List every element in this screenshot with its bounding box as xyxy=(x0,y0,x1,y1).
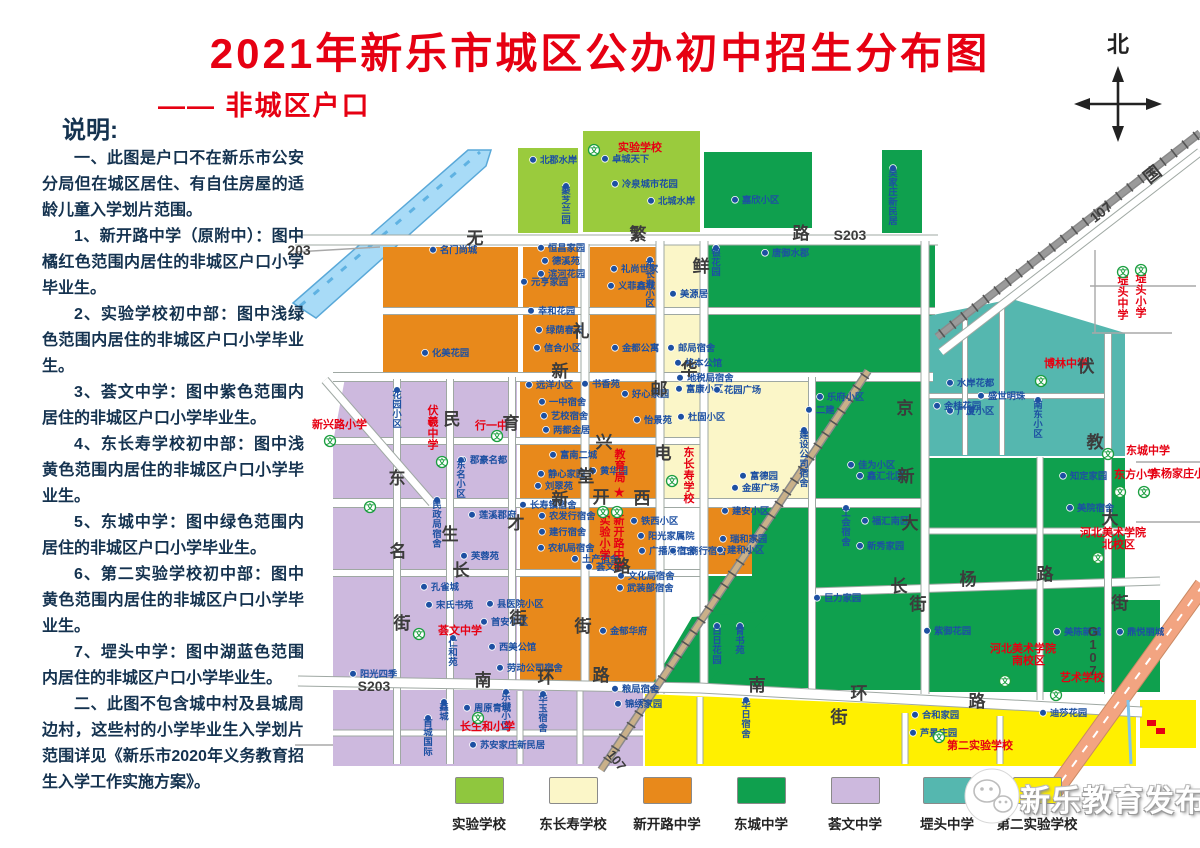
poi-dot xyxy=(582,380,589,387)
road-name: S203 xyxy=(358,678,391,694)
area-label-char: 宿 xyxy=(741,718,750,729)
area-label-char: 小 xyxy=(455,478,466,489)
poi-dot xyxy=(535,482,542,489)
area-label: 杜固小区 xyxy=(688,411,726,422)
school-icon-glyph: 文 xyxy=(438,457,447,467)
poi-dot xyxy=(538,244,545,251)
poi-dot xyxy=(639,547,646,554)
poi-dot xyxy=(1067,504,1074,511)
poi-dot xyxy=(676,385,683,392)
poi-dot xyxy=(612,685,619,692)
area-label: 合和家园 xyxy=(922,709,959,720)
poi-dot xyxy=(539,528,546,535)
road-name: 新 xyxy=(552,489,569,509)
poi-dot xyxy=(910,729,917,736)
poi-dot xyxy=(740,472,747,479)
area-label: 紫御花园 xyxy=(934,625,971,636)
poi-dot xyxy=(572,555,579,562)
road-name: 大 xyxy=(902,513,919,533)
school-label-line2: 南校区 xyxy=(1012,653,1045,667)
school-icon-glyph: 文 xyxy=(1094,553,1103,563)
area-label-char: 乐 xyxy=(501,691,511,702)
school-label-char: 育 xyxy=(615,459,626,473)
area-label-char: 工 xyxy=(841,508,851,518)
area-label-char: 宿 xyxy=(799,467,808,478)
poi-dot xyxy=(489,643,496,650)
poi-dot xyxy=(538,544,545,551)
zone-dongcheng-north-1 xyxy=(704,152,812,228)
school-icon-glyph: 文 xyxy=(1116,487,1125,497)
area-label: 书香苑 xyxy=(592,378,621,389)
poi-dot xyxy=(534,344,541,351)
poi-dot xyxy=(617,584,624,591)
area-label: 鼎悦丽城 xyxy=(1127,626,1165,637)
school-icon-glyph: 文 xyxy=(1119,267,1128,277)
road-name: 西 xyxy=(634,489,651,508)
area-label: 农发行宿舍 xyxy=(548,510,596,521)
school-icon-glyph: 文 xyxy=(1137,265,1146,275)
poi-dot xyxy=(350,670,357,677)
legend-swatch xyxy=(737,777,786,804)
area-label: 冷泉城市花园 xyxy=(622,178,678,189)
area-label-char: 玉 xyxy=(538,704,548,714)
school-label: 长生和小学 xyxy=(460,719,515,733)
poi-dot xyxy=(732,484,739,491)
area-label-char: 白 xyxy=(712,625,721,636)
area-label: 幸和花园 xyxy=(538,305,575,316)
school-label: 东杨家庄小学 xyxy=(1150,466,1200,480)
area-label: 水岸花都 xyxy=(957,377,995,388)
area-label-char: 宿 xyxy=(841,526,850,537)
area-label-char: 书 xyxy=(735,635,745,646)
poi-dot xyxy=(612,344,619,351)
notes-panel: 说明: 一、此图是户口不在新乐市公安分局但在城区居住、有自住房屋的适龄儿童入学划… xyxy=(42,118,304,796)
area-label: 新秀家园 xyxy=(867,540,904,551)
area-label: 铁西小区 xyxy=(641,515,679,526)
road-name: 长 xyxy=(891,576,909,596)
poi-red-block xyxy=(1147,720,1156,726)
area-label: 宋氏书苑 xyxy=(435,599,474,610)
school-label-char: 寿 xyxy=(684,468,695,482)
school-label-char: 路 xyxy=(614,536,626,550)
area-label-char: 舍 xyxy=(537,722,548,733)
road-name: 街 xyxy=(509,608,527,628)
school-icon-glyph: 文 xyxy=(326,436,335,446)
road-name: 街 xyxy=(393,613,411,633)
area-label-char: 街 xyxy=(500,701,511,712)
area-label-char: 政 xyxy=(432,509,442,520)
area-label-char: 会 xyxy=(841,517,851,528)
area-label-char: 鑫 xyxy=(438,701,449,712)
school-label-char: 东 xyxy=(684,445,695,459)
poi-dot xyxy=(611,265,618,272)
road-name: 京 xyxy=(897,398,914,418)
school-label-char: 中 xyxy=(1118,296,1129,310)
poi-dot xyxy=(978,392,985,399)
poi-dot xyxy=(608,282,615,289)
area-label-char: 东 xyxy=(1033,409,1042,420)
area-label: 花园广场 xyxy=(724,384,761,395)
area-label: 佳为小区 xyxy=(858,459,896,470)
area-label-char: 仁 xyxy=(448,637,458,648)
poi-dot xyxy=(543,426,550,433)
area-label-char: 华 xyxy=(741,699,751,710)
area-label: 农机局宿舍 xyxy=(547,542,595,553)
poi-dot xyxy=(541,412,548,419)
poi-dot xyxy=(469,511,476,518)
school-icon-glyph: 文 xyxy=(1052,690,1061,700)
school-label-char: 小 xyxy=(1135,294,1147,308)
area-label-char: 花 xyxy=(711,257,721,268)
school-label-char: 学 xyxy=(600,548,611,562)
area-label-char: 园 xyxy=(392,400,401,410)
road-name: 路 xyxy=(793,223,811,243)
school-label-char: 中 xyxy=(428,426,439,440)
road-name: 路 xyxy=(1037,564,1055,584)
poi-dot xyxy=(470,741,477,748)
area-label: 北城水岸 xyxy=(658,195,696,206)
area-label-char: 区 xyxy=(645,298,655,308)
area-label: 县医院小区 xyxy=(497,598,544,609)
poi-dot xyxy=(934,402,941,409)
compass-arrow-e xyxy=(1146,98,1162,110)
poi-dot xyxy=(912,711,919,718)
poi-dot xyxy=(520,501,527,508)
road-name: 华 xyxy=(681,359,698,379)
poi-dot xyxy=(722,507,729,514)
notes-paragraph: 2、实验学校初中部：图中浅绿色范围内居住的非城区户口小学毕业生。 xyxy=(42,302,304,380)
poi-dot xyxy=(421,583,428,590)
area-label: 建行宿舍 xyxy=(549,526,587,537)
legend-swatch xyxy=(455,777,504,804)
area-label-char: 吴 xyxy=(888,168,898,178)
area-label-char: 寿 xyxy=(645,278,654,289)
area-label: 怡景苑 xyxy=(644,414,673,425)
school-label-char: 头 xyxy=(1136,283,1147,297)
poi-dot xyxy=(717,546,724,553)
school-label-line2: 北校区 xyxy=(1102,537,1135,551)
road-name: 繁 xyxy=(629,224,648,244)
road-name: 民 xyxy=(444,410,461,429)
road-name: 路 xyxy=(593,665,611,685)
poi-dot xyxy=(497,664,504,671)
poi-dot xyxy=(539,398,546,405)
road-name: 无 xyxy=(466,229,484,248)
poi-dot xyxy=(430,246,437,253)
area-label: 嘉欣小区 xyxy=(741,194,780,205)
poi-dot xyxy=(422,349,429,356)
poi-dot xyxy=(668,344,675,351)
poi-dot xyxy=(464,704,471,711)
school-label: 第二实验学校 xyxy=(947,738,1014,752)
poi-dot xyxy=(848,461,855,468)
legend-label: 东城中学 xyxy=(713,813,809,833)
area-label: 武装部宿舍 xyxy=(627,582,674,593)
poi-dot xyxy=(1060,472,1067,479)
poi-dot xyxy=(615,700,622,707)
poi-dot xyxy=(762,249,769,256)
poi-dot xyxy=(536,326,543,333)
area-label: 郡豪名都 xyxy=(469,454,508,465)
road-name-char: 7 xyxy=(1089,663,1096,678)
area-label: 艺校宿舍 xyxy=(551,410,589,421)
road-name: 堂 xyxy=(578,466,595,486)
school-label: 河北美术学院 xyxy=(990,641,1056,655)
area-label-char: 花 xyxy=(712,644,722,655)
poi-dot xyxy=(814,594,821,601)
road-name: 杨 xyxy=(960,569,977,589)
road-name: 新 xyxy=(552,361,569,381)
watermark: 新乐教育发布 xyxy=(962,768,1200,824)
area-label-char: 民 xyxy=(432,500,441,510)
notes-paragraph: 1、新开路中学（原附中）：图中橘红色范围内居住的非城区户口小学毕业生。 xyxy=(42,224,304,302)
wechat-icon xyxy=(962,768,1022,826)
area-label: 盛世明珠 xyxy=(988,390,1026,401)
area-label-char: 名 xyxy=(456,469,465,480)
school-label: 实验学校 xyxy=(618,140,663,154)
school-icon-glyph: 文 xyxy=(1001,676,1010,686)
compass-arrow-w xyxy=(1074,98,1090,110)
poi-dot xyxy=(530,156,537,163)
area-label-char: 苑 xyxy=(447,656,458,667)
poi-dot xyxy=(638,532,645,539)
area-label-char: 宿 xyxy=(538,712,547,723)
legend-swatch xyxy=(643,777,692,804)
area-label: 金桂花园 xyxy=(943,400,981,411)
road-name: 邮 xyxy=(651,379,668,399)
area-label-char: 司 xyxy=(799,459,808,469)
legend-swatch xyxy=(549,777,598,804)
school-icon-glyph: 文 xyxy=(613,507,622,517)
area-label-char: 庄 xyxy=(888,186,898,197)
area-label: 知定家园 xyxy=(1069,470,1107,481)
road-name: S203 xyxy=(834,227,867,243)
poi-dot xyxy=(600,627,607,634)
area-label-char: 新 xyxy=(888,196,898,207)
area-label-char: 芝 xyxy=(561,195,571,206)
poi-dot xyxy=(714,386,721,393)
area-label: 邮局宿舍 xyxy=(678,342,716,353)
area-label-char: 华 xyxy=(538,693,548,704)
poi-dot xyxy=(550,451,557,458)
school-icon-glyph: 文 xyxy=(599,507,608,517)
notes-paragraphs: 一、此图是户口不在新乐市公安分局但在城区居住、有自住房屋的适龄儿童入学划片范围。… xyxy=(42,146,304,796)
area-label-char: 园 xyxy=(712,655,721,665)
area-label-char: 银 xyxy=(711,247,721,258)
school-icon-glyph: 文 xyxy=(1037,376,1046,386)
area-label-char: 舍 xyxy=(840,536,851,547)
school-icon-glyph: 文 xyxy=(493,431,502,441)
area-label: 卓城天下 xyxy=(612,153,649,164)
poi-dot xyxy=(857,542,864,549)
page-title: 2021年新乐市城区公办初中招生分布图 xyxy=(60,20,1140,81)
poi-red-block xyxy=(1156,728,1165,734)
poi-dot xyxy=(678,413,685,420)
area-label-char: 东 xyxy=(456,459,465,470)
school-icon-glyph: 文 xyxy=(935,732,944,742)
area-label-char: 兰 xyxy=(561,204,570,215)
school-label-char: 学 xyxy=(1118,308,1129,322)
area-label-char: 小 xyxy=(1032,418,1043,429)
school-label: 东城中学 xyxy=(1126,443,1170,457)
area-label: 劳动公司宿舍 xyxy=(507,662,563,673)
poi-dot xyxy=(521,278,528,285)
poi-dot xyxy=(622,390,629,397)
area-label-char: 国 xyxy=(423,737,432,747)
school-label-char: 头 xyxy=(1118,285,1129,299)
area-label-char: 城 xyxy=(423,727,433,738)
area-label: 瑞和家园 xyxy=(730,533,767,544)
poi-dot xyxy=(648,197,655,204)
area-label-char: 公 xyxy=(799,449,809,459)
poi-dot xyxy=(1054,628,1061,635)
school-icon-glyph: 文 xyxy=(366,502,375,512)
legend-label: 荟文中学 xyxy=(807,813,903,833)
road-name: 街 xyxy=(1111,593,1129,613)
area-label: 巨力家园 xyxy=(824,592,861,603)
area-label-char: 设 xyxy=(799,439,809,450)
road-name: 名 xyxy=(390,541,407,561)
school-label-char: 羲 xyxy=(427,415,439,429)
area-label-char: 建 xyxy=(799,429,809,440)
area-label-char: 东 xyxy=(645,259,654,270)
poi-dot xyxy=(528,307,535,314)
school-label-char: 校 xyxy=(684,491,696,505)
area-label-char: 园 xyxy=(711,267,720,277)
poi-dot xyxy=(720,535,727,542)
area-label-char: 南 xyxy=(1033,399,1042,410)
area-label: 富南二城 xyxy=(560,449,598,460)
area-label: 一中宿舍 xyxy=(549,396,587,407)
area-label: 粮局宿舍 xyxy=(622,683,660,694)
area-label-char: 小 xyxy=(644,288,655,299)
poi-dot xyxy=(947,379,954,386)
area-label-char: 舍 xyxy=(740,728,751,739)
area-label: 文化局宿舍 xyxy=(627,570,675,581)
poi-dot xyxy=(817,393,824,400)
poi-dot xyxy=(461,552,468,559)
area-label: 建安小区 xyxy=(732,505,770,516)
poi-dot xyxy=(631,517,638,524)
school-icon-glyph: 文 xyxy=(1140,487,1149,497)
poi-dot xyxy=(924,627,931,634)
notes-paragraph: 3、荟文中学：图中紫色范围内居住的非城区户口小学毕业生。 xyxy=(42,380,304,432)
area-label-char: 区 xyxy=(456,489,466,499)
notes-paragraph: 4、东长寿学校初中部：图中浅黄色范围内居住的非城区户口小学毕业生。 xyxy=(42,432,304,510)
school-label-char: 验 xyxy=(600,525,612,539)
road-name: 电 xyxy=(655,443,672,463)
road-name: 环 xyxy=(538,668,555,687)
road-name: 南 xyxy=(749,675,766,695)
poi-dot xyxy=(542,257,549,264)
area-label: 迪莎花园 xyxy=(1050,707,1087,718)
area-label-char: 家 xyxy=(888,177,898,188)
road-name: 环 xyxy=(851,684,868,703)
road-name: 路 xyxy=(969,691,987,711)
area-label: 北郡水岸 xyxy=(540,154,578,165)
area-label: 芙蓉苑 xyxy=(470,550,500,561)
poi-dot xyxy=(634,416,641,423)
road-name: 街 xyxy=(909,594,927,614)
legend-item: 荟文中学 xyxy=(807,777,903,833)
poi-dot xyxy=(487,600,494,607)
area-label: 金座广场 xyxy=(741,482,779,493)
area-label-char: 居 xyxy=(888,216,897,226)
area-label-char: 长 xyxy=(645,269,655,280)
road-name: 长 xyxy=(453,560,471,580)
watermark-text: 新乐教育发布 xyxy=(1020,776,1200,820)
poi-dot xyxy=(539,512,546,519)
area-label: 西美公馆 xyxy=(499,641,536,652)
area-label: 建和小区 xyxy=(727,544,765,555)
area-label-char: 青 xyxy=(735,625,744,636)
road-name: 开 xyxy=(593,488,610,507)
area-label-char: 区 xyxy=(392,419,402,429)
area-label: 金郁华府 xyxy=(609,625,648,636)
school-icon-glyph: 文 xyxy=(668,476,677,486)
area-label-char: 际 xyxy=(423,747,433,757)
school-label-char: 小 xyxy=(599,536,611,550)
area-label: 美源居 xyxy=(680,288,708,299)
area-label: 元亨家园 xyxy=(531,276,568,287)
notes-paragraph: 二、此图不包含城中村及县城周边村，这些村的小学毕业生入学划片范围详见《新乐市20… xyxy=(42,692,304,796)
road-name: 伏 xyxy=(1078,356,1095,376)
notes-paragraph: 一、此图是户口不在新乐市公安分局但在城区居住、有自住房屋的适龄儿童入学划片范围。 xyxy=(42,146,304,224)
notes-paragraph: 6、第二实验学校初中部：图中黄色范围内居住的非城区户口小学毕业生。 xyxy=(42,562,304,640)
poi-dot xyxy=(806,406,813,413)
notes-paragraph: 7、堽头中学：图中湖蓝色范围内居住的非城区户口小学毕业生。 xyxy=(42,640,304,692)
school-label-char: 伏 xyxy=(428,403,439,417)
poi-dot xyxy=(602,155,609,162)
area-label-char: 首 xyxy=(423,717,433,728)
area-label: 阳光家属院 xyxy=(648,530,695,541)
area-label: 两都金居 xyxy=(553,424,590,435)
gov-star: ★ xyxy=(613,484,626,500)
road-name: 礼 xyxy=(573,321,590,341)
area-label-char: 宿 xyxy=(432,528,441,539)
road-name: 教 xyxy=(1086,432,1105,452)
poi-dot xyxy=(732,196,739,203)
school-label-char: 长 xyxy=(684,457,696,471)
area-label-char: 小 xyxy=(391,408,402,419)
poi-dot xyxy=(670,547,677,554)
school-label: 艺术学校 xyxy=(1060,670,1105,684)
legend-swatch xyxy=(831,777,880,804)
area-label-char: 城 xyxy=(439,711,449,722)
page: 北郡水岸卓城天下冷泉城市花园北城水岸聚芝兰园嘉欣小区吴家庄新民居银花园唐御水郡名… xyxy=(0,0,1200,848)
legend-item: 实验学校 xyxy=(431,777,527,833)
road-name: 鲜 xyxy=(693,256,710,276)
notes-heading: 说明: xyxy=(62,118,304,144)
school-label-char: 学 xyxy=(684,480,695,494)
road-name: 兴 xyxy=(596,433,613,452)
road-name: 大 xyxy=(1102,508,1119,528)
poi-dot xyxy=(862,517,869,524)
poi-dot xyxy=(612,180,619,187)
poi-dot xyxy=(538,470,545,477)
area-label-char: 舍 xyxy=(798,477,809,488)
school-icon-glyph: 文 xyxy=(415,629,424,639)
poi-dot xyxy=(857,472,864,479)
area-label-char: 和 xyxy=(447,647,457,658)
area-label: 信合小区 xyxy=(544,342,582,353)
road-name: 育 xyxy=(503,413,520,433)
area-label-char: 日 xyxy=(741,710,750,720)
road-name: 南 xyxy=(475,670,492,690)
legend-label: 实验学校 xyxy=(431,813,527,833)
area-label: 二建 xyxy=(816,404,835,415)
legend-label: 东长寿学校 xyxy=(525,813,621,833)
